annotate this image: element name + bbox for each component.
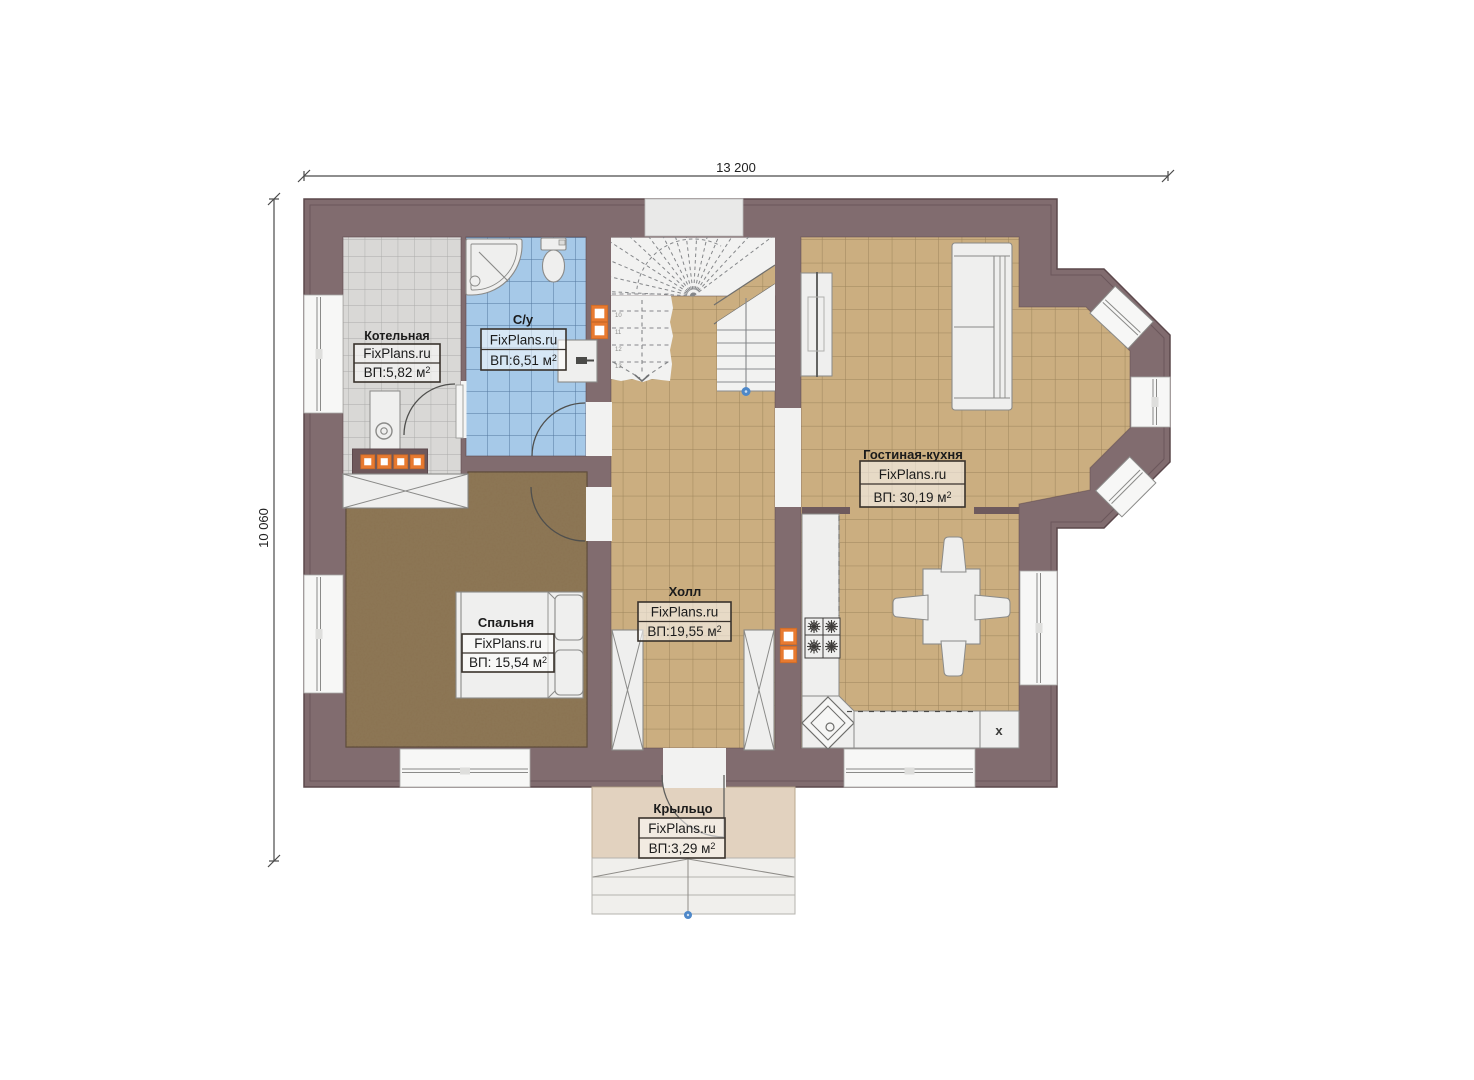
svg-text:FixPlans.ru: FixPlans.ru bbox=[474, 636, 542, 651]
svg-text:Холл: Холл bbox=[669, 584, 702, 599]
svg-text:FixPlans.ru: FixPlans.ru bbox=[879, 467, 947, 482]
svg-text:10 060: 10 060 bbox=[256, 508, 271, 548]
svg-text:Спальня: Спальня bbox=[478, 615, 534, 630]
svg-text:13: 13 bbox=[615, 364, 622, 370]
svg-text:ВП: 15,54 м2: ВП: 15,54 м2 bbox=[469, 655, 547, 670]
svg-text:ВП:6,51 м2: ВП:6,51 м2 bbox=[490, 353, 557, 368]
svg-text:FixPlans.ru: FixPlans.ru bbox=[363, 346, 431, 361]
svg-text:12: 12 bbox=[615, 347, 622, 353]
svg-text:ВП:5,82 м2: ВП:5,82 м2 bbox=[364, 365, 431, 380]
svg-text:10: 10 bbox=[615, 313, 622, 319]
svg-text:ВП: 30,19 м2: ВП: 30,19 м2 bbox=[873, 490, 951, 505]
svg-text:FixPlans.ru: FixPlans.ru bbox=[651, 605, 719, 620]
svg-text:С/у: С/у bbox=[513, 312, 534, 327]
svg-text:13 200: 13 200 bbox=[716, 160, 756, 175]
svg-text:Крыльцо: Крыльцо bbox=[653, 801, 712, 816]
svg-text:ВП:19,55 м2: ВП:19,55 м2 bbox=[647, 624, 721, 639]
svg-text:FixPlans.ru: FixPlans.ru bbox=[490, 333, 558, 348]
svg-text:Котельная: Котельная bbox=[364, 329, 429, 343]
svg-text:Гостиная-кухня: Гостиная-кухня bbox=[863, 447, 963, 462]
svg-text:11: 11 bbox=[615, 330, 622, 336]
svg-text:x: x bbox=[995, 723, 1003, 738]
svg-text:ВП:3,29 м2: ВП:3,29 м2 bbox=[649, 841, 716, 856]
svg-text:FixPlans.ru: FixPlans.ru bbox=[648, 821, 716, 836]
